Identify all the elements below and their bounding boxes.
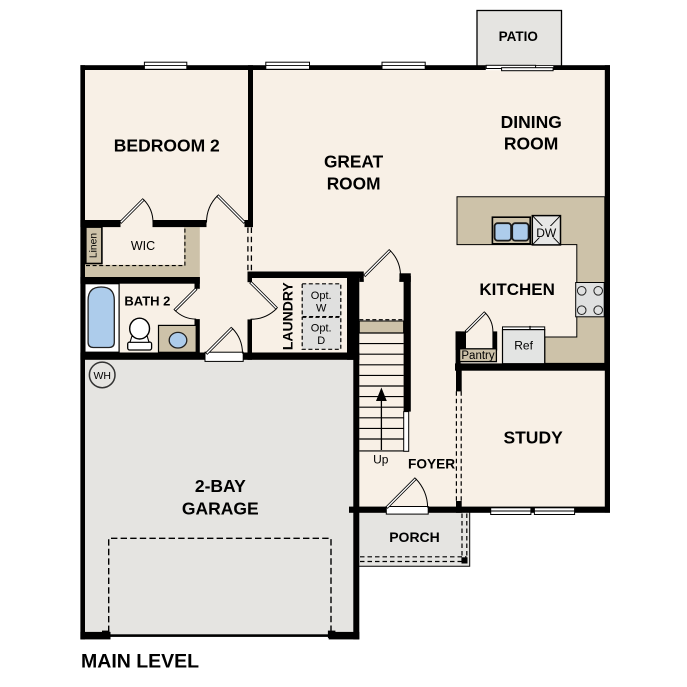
svg-text:FOYER: FOYER [408, 457, 455, 472]
svg-text:GARAGE: GARAGE [182, 498, 259, 518]
svg-text:ROOM: ROOM [504, 133, 558, 153]
svg-text:PORCH: PORCH [389, 529, 440, 545]
svg-text:WH: WH [93, 370, 111, 382]
svg-text:KITCHEN: KITCHEN [479, 280, 555, 299]
svg-text:PATIO: PATIO [499, 29, 538, 44]
svg-text:DW: DW [536, 226, 557, 240]
svg-text:WIC: WIC [131, 239, 155, 253]
svg-text:DINING: DINING [501, 112, 562, 132]
svg-text:ROOM: ROOM [327, 174, 381, 194]
svg-text:STUDY: STUDY [503, 427, 563, 447]
svg-text:2-BAY: 2-BAY [195, 476, 246, 496]
svg-text:Opt.: Opt. [311, 290, 332, 302]
svg-text:Ref: Ref [514, 338, 533, 352]
svg-text:BATH 2: BATH 2 [124, 293, 170, 308]
svg-text:BEDROOM 2: BEDROOM 2 [114, 135, 220, 155]
svg-text:GREAT: GREAT [324, 151, 384, 171]
svg-text:Linen: Linen [89, 233, 100, 258]
svg-text:Opt.: Opt. [311, 323, 332, 335]
svg-text:Pantry: Pantry [461, 350, 494, 362]
svg-text:W: W [316, 302, 327, 314]
svg-text:LAUNDRY: LAUNDRY [279, 282, 295, 351]
svg-text:MAIN LEVEL: MAIN LEVEL [81, 651, 199, 673]
svg-text:Up: Up [373, 452, 389, 466]
svg-text:D: D [317, 335, 325, 347]
